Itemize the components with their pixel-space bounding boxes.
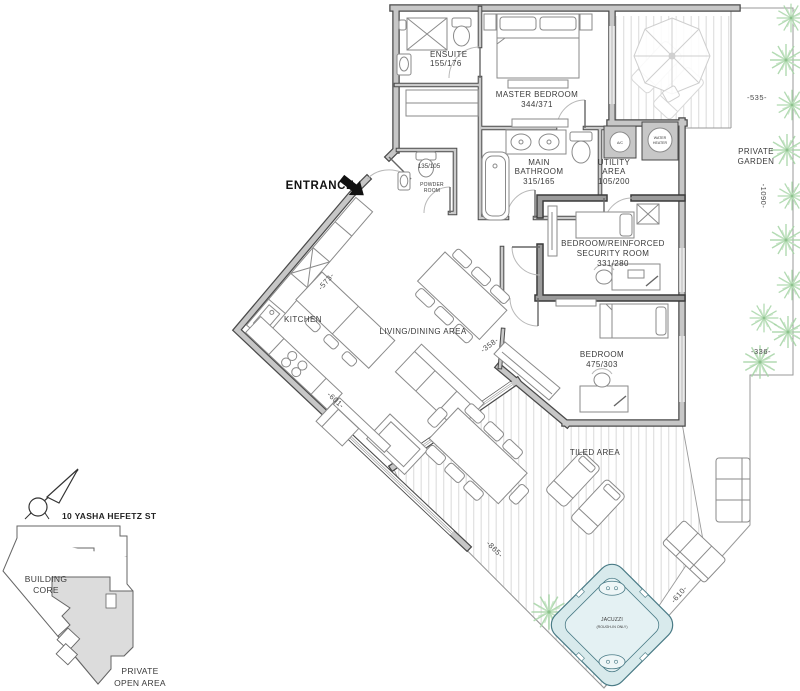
room-label-kitchen: KITCHEN bbox=[284, 315, 322, 324]
room-label-living: LIVING/DINING AREA bbox=[379, 327, 466, 336]
floor-plan: A/C WATER HEATER bbox=[0, 0, 800, 691]
room-label-powder-2: ROOM bbox=[424, 188, 440, 194]
water-heater-label-2: HEATER bbox=[653, 141, 668, 145]
room-dims-security: 331/280 bbox=[597, 259, 629, 268]
room-label-bathroom-2: BATHROOM bbox=[515, 167, 564, 176]
room-dims-utility: 105/200 bbox=[598, 177, 630, 186]
room-label-security-1: BEDROOM/REINFORCED bbox=[561, 239, 665, 248]
room-dims-ensuite: 155/176 bbox=[430, 59, 462, 68]
room-dims-bathroom: 315/165 bbox=[523, 177, 555, 186]
ac-label: A/C bbox=[617, 141, 623, 145]
jacuzzi-label-1: JACUZZI bbox=[601, 617, 623, 623]
dim-garden-top: -535- bbox=[747, 93, 767, 102]
room-label-garden-2: GARDEN bbox=[738, 157, 775, 166]
open-area-label-1: PRIVATE bbox=[121, 666, 158, 676]
room-label-garden-1: PRIVATE bbox=[738, 147, 774, 156]
room-label-security-2: SECURITY ROOM bbox=[577, 249, 650, 258]
water-heater-label-1: WATER bbox=[654, 136, 667, 140]
building-core-label-1: BUILDING bbox=[25, 574, 68, 584]
open-area-label-2: OPEN AREA bbox=[114, 678, 166, 688]
room-label-bathroom-1: MAIN bbox=[528, 158, 550, 167]
room-label-ensuite: ENSUITE bbox=[430, 50, 467, 59]
dim-garden-lower: -336- bbox=[751, 347, 771, 356]
room-label-utility-1: UTILITY bbox=[598, 158, 631, 167]
street-label: 10 YASHA HEFETZ ST bbox=[62, 511, 157, 521]
room-label-master: MASTER BEDROOM bbox=[496, 90, 579, 99]
room-label-utility-2: AREA bbox=[602, 167, 626, 176]
jacuzzi-label-2: (ROUGH-IN ONLY) bbox=[596, 625, 627, 629]
building-core-label-2: CORE bbox=[33, 585, 59, 595]
room-dims-master: 344/371 bbox=[521, 100, 553, 109]
dim-garden-right: -1090- bbox=[759, 184, 768, 209]
room-dims-bedroom: 475/303 bbox=[586, 360, 618, 369]
room-dims-powder: 135/105 bbox=[418, 163, 441, 170]
room-label-bedroom: BEDROOM bbox=[580, 350, 624, 359]
room-label-tiled: TILED AREA bbox=[570, 448, 621, 457]
